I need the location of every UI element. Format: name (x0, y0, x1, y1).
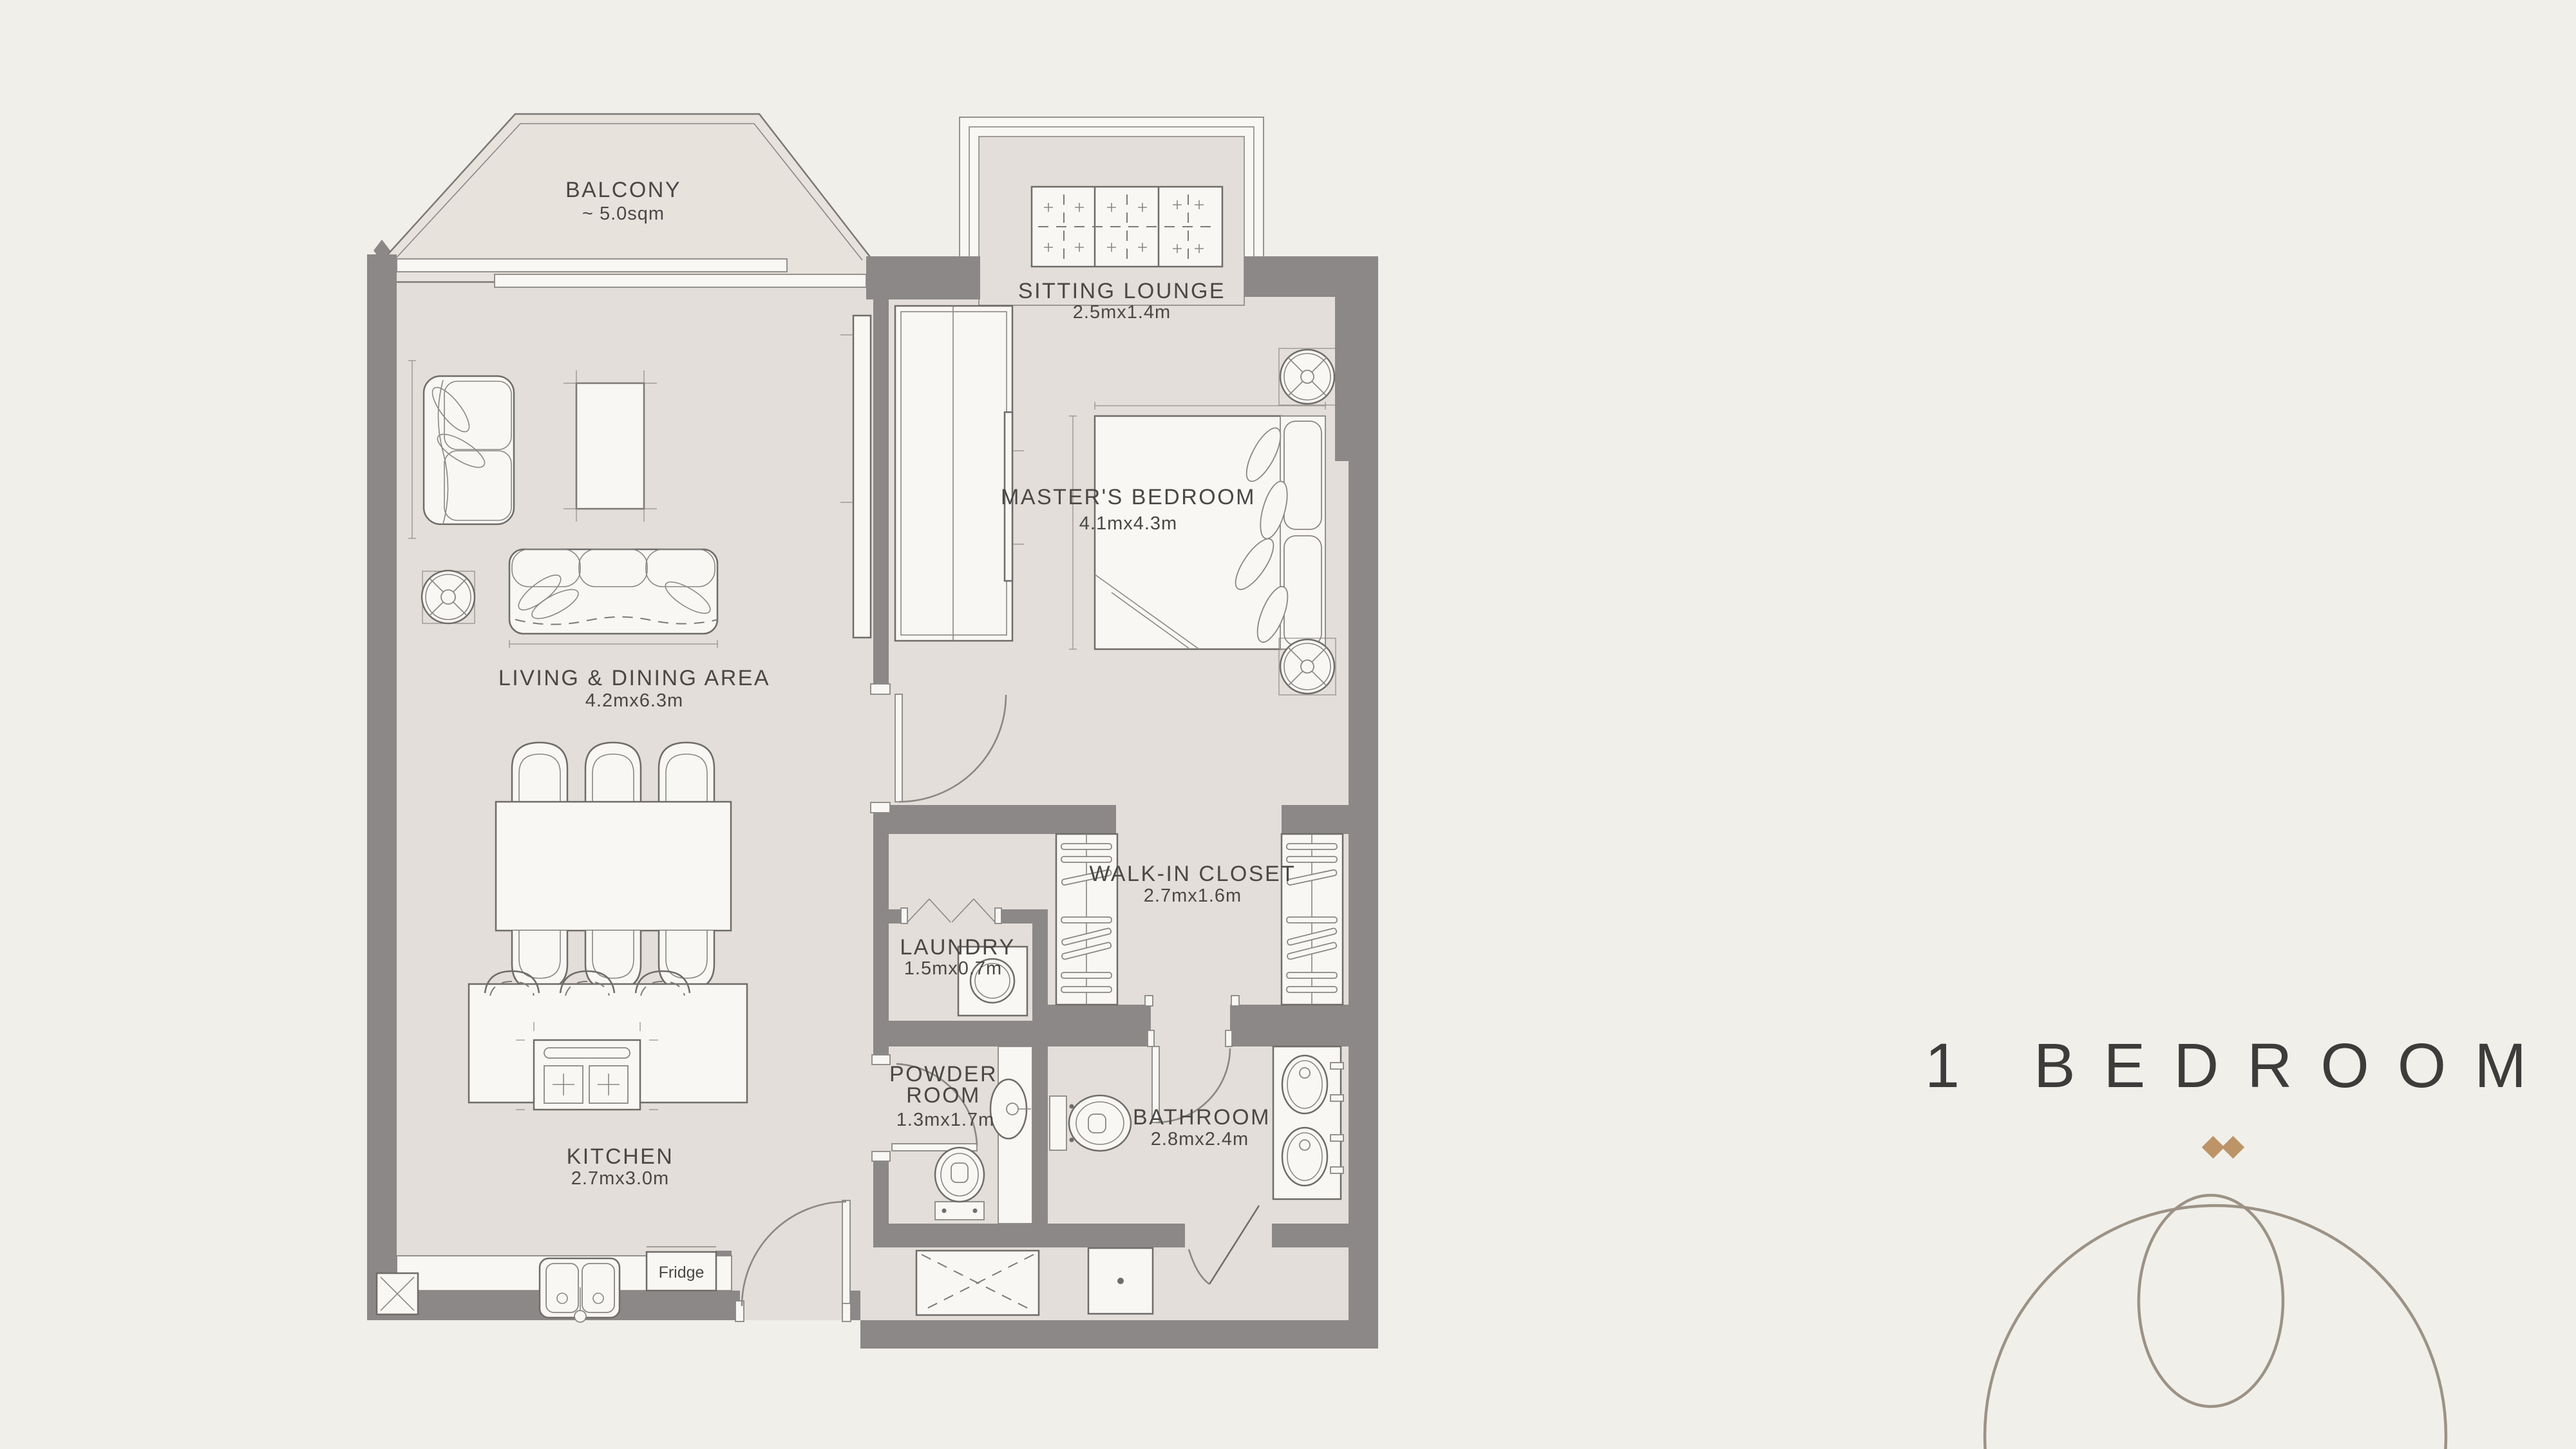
label-living-dining: LIVING & DINING AREA (498, 666, 770, 690)
label-masters-bedroom: MASTER'S BEDROOM (1001, 485, 1256, 509)
dining-chairs-top (512, 743, 714, 802)
powder-toilet (935, 1148, 984, 1220)
label-laundry: LAUNDRY (900, 935, 1015, 960)
closet-door-jamb (1231, 996, 1239, 1006)
bifold-jamb (901, 908, 907, 923)
bathroom-vanity (1273, 1046, 1343, 1199)
fridge-label: Fridge (659, 1264, 705, 1282)
floor-drain-unit (1088, 1248, 1153, 1314)
label-living-dining-dims: 4.2mx6.3m (585, 690, 683, 711)
label-balcony: BALCONY (565, 178, 681, 202)
bathroom-toilet (1050, 1095, 1131, 1151)
door-jamb (872, 1151, 890, 1161)
corner-shaft (377, 1273, 418, 1314)
label-kitchen: KITCHEN (567, 1144, 674, 1169)
label-laundry-dims: 1.5mx0.7m (904, 958, 1002, 979)
shower (916, 1251, 1039, 1315)
door-jamb (871, 684, 890, 694)
label-bathroom-dims: 2.8mx2.4m (1151, 1129, 1249, 1150)
door-jamb (871, 802, 890, 813)
logo-circles (1985, 1195, 2446, 1449)
label-sitting-lounge: SITTING LOUNGE (1018, 279, 1226, 303)
bedroom-door-leaf (895, 694, 902, 802)
fridge: Fridge (647, 1247, 716, 1291)
diamond-icon (2202, 1136, 2224, 1159)
bedroom-wardrobe (895, 306, 1024, 641)
kitchen-sink (540, 1258, 620, 1322)
door-jamb (1226, 1030, 1232, 1046)
label-masters-bedroom-dims: 4.1mx4.3m (1079, 513, 1177, 534)
side-table (422, 571, 475, 623)
door-jamb (872, 1055, 890, 1065)
balcony-sliding-door-panel (495, 274, 866, 287)
bifold-jamb (995, 908, 1001, 923)
floorplan-page: Fridge (0, 0, 2576, 1449)
floor-plan-canvas: Fridge (0, 0, 2576, 1449)
label-sitting-lounge-dims: 2.5mx1.4m (1073, 302, 1171, 323)
unit-type-title: 1 BEDROOM (1925, 1030, 2555, 1101)
diamond-icon (2222, 1136, 2244, 1159)
dining-chairs-bottom (512, 931, 714, 990)
label-balcony-dims: ~ 5.0sqm (582, 204, 665, 224)
wardrobe-left (1056, 834, 1117, 1005)
label-walk-in-closet-dims: 2.7mx1.6m (1144, 885, 1242, 906)
entry-door-leaf (842, 1200, 850, 1303)
unit-type-panel: 1 BEDROOM (1925, 1030, 2555, 1449)
tv-panel-living (853, 316, 871, 638)
sofa (509, 549, 718, 648)
label-bathroom: BATHROOM (1133, 1105, 1271, 1130)
label-powder-room-line2: ROOM (906, 1083, 981, 1108)
closet-door-jamb (1145, 996, 1153, 1006)
dining-table (496, 802, 731, 931)
label-powder-room-dims: 1.3mx1.7m (896, 1110, 994, 1130)
label-kitchen-dims: 2.7mx3.0m (571, 1168, 669, 1189)
label-walk-in-closet: WALK-IN CLOSET (1090, 862, 1296, 886)
balcony-sliding-door-panel (397, 259, 787, 272)
wardrobe-right (1282, 834, 1343, 1005)
armchair (408, 361, 514, 538)
sitting-lounge-sofa (1032, 187, 1222, 267)
door-jamb (1148, 1030, 1154, 1046)
coffee-table (576, 383, 644, 509)
